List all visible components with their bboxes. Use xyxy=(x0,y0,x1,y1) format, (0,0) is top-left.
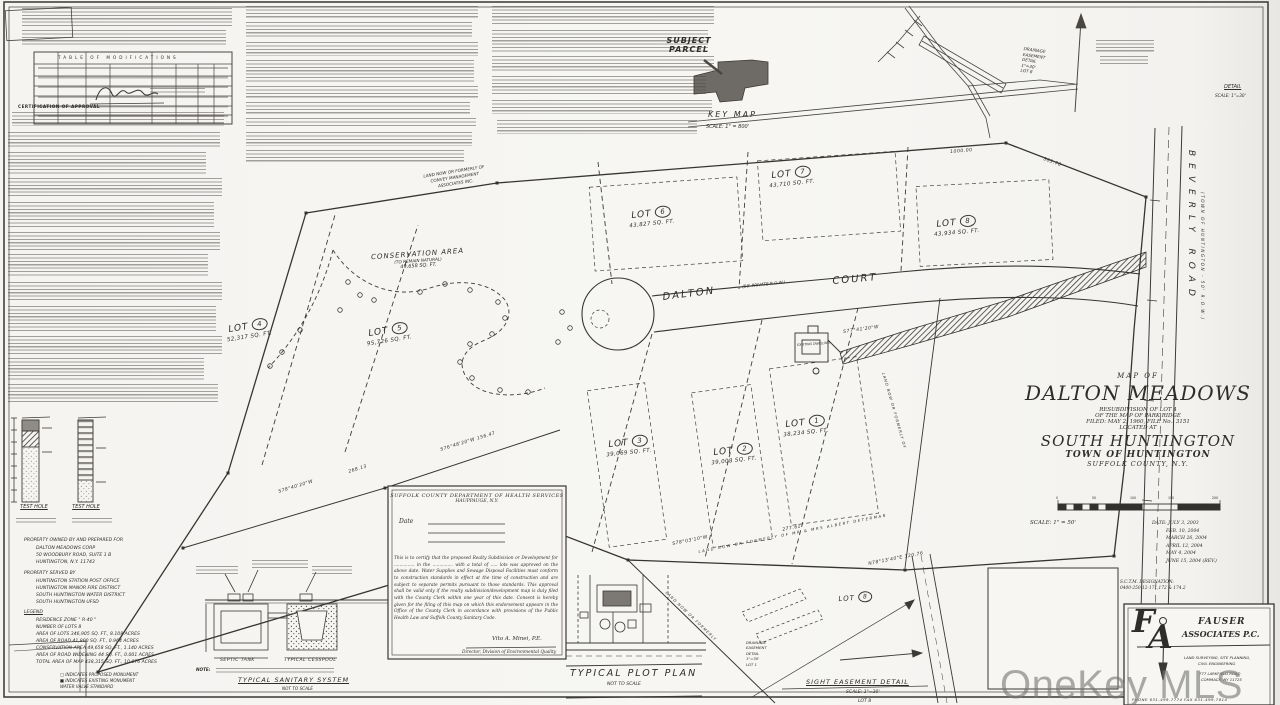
title-scale: SCALE: 1" = 50' xyxy=(1030,520,1076,526)
legend-line: AREA OF ROAD 41,800 SQ. FT., 0.964 ACRES xyxy=(36,639,139,644)
bearing-label: 1000.00 xyxy=(950,148,973,155)
existing-dwelling-label: EXISTING DWELLING xyxy=(797,341,830,347)
illegible-notes-block xyxy=(246,6,478,18)
illegible-notes-block xyxy=(8,152,206,174)
illegible-notes-block xyxy=(8,202,214,228)
scale-tick: 200 xyxy=(1212,496,1218,500)
plot-plan-title: TYPICAL PLOT PLAN xyxy=(570,668,697,679)
date-line: FEB. 10, 2004 xyxy=(1152,528,1217,536)
illegible-notes-block xyxy=(216,668,334,674)
served-line: PROPERTY SERVED BY xyxy=(24,571,75,576)
health-box-date-label: Date xyxy=(399,518,413,525)
date-line: MAY 4, 2004 xyxy=(1152,550,1217,558)
illegible-notes-block xyxy=(150,88,205,94)
legend-symbol-line: WATER VALVE STANDARD xyxy=(60,684,113,689)
lot-label-7: LOT7 43,710 SQ. FT. xyxy=(745,156,837,191)
legend-symbol-line: □ INDICATES PROPOSED MONUMENT xyxy=(60,672,138,677)
illegible-notes-block xyxy=(1100,56,1148,66)
illegible-notes-block xyxy=(8,254,208,278)
illegible-notes-block xyxy=(12,112,224,126)
health-box-body: This is to certify that the proposed Rea… xyxy=(394,556,558,623)
illegible-notes-block xyxy=(8,336,222,354)
bearing-label: S76°48'20"W 156.47 xyxy=(440,431,496,453)
detail-title: DETAIL xyxy=(1224,84,1241,90)
drainage-easement-note-top: DRAINAGE EASEMENT DETAIL 1"=30' LOT 8 xyxy=(1020,46,1046,77)
bearing-label: N78°13'40"E 320.76 xyxy=(868,551,924,567)
legend-line: NUMBER OF LOTS 8 xyxy=(36,625,81,630)
fauser-name: FAUSER xyxy=(1198,617,1246,627)
illegible-notes-block xyxy=(8,132,220,148)
illegible-notes-block xyxy=(492,100,712,114)
owner-line: DALTON MEADOWS CORP xyxy=(36,546,95,551)
lot-label-8-detail: LOT8 xyxy=(819,583,890,607)
served-line: HUNTINGTON STATION POST OFFICE xyxy=(36,579,119,584)
illegible-notes-block xyxy=(1096,40,1154,52)
title-block: MAP OF DALTON MEADOWS RESUBDIVISION OF L… xyxy=(1018,372,1258,468)
title-map-name: DALTON MEADOWS xyxy=(1018,381,1258,405)
title-map-of: MAP OF xyxy=(1018,372,1258,380)
test-hole-label-2: TEST HOLE xyxy=(64,504,108,510)
key-map-scale: SCALE: 1" = 800' xyxy=(706,124,749,130)
adjoiner-label-top: LAND NOW OR FORMERLY OF CONVEY MANAGEMEN… xyxy=(408,162,502,194)
illegible-notes-block xyxy=(246,22,472,38)
title-county: SUFFOLK COUNTY, N.Y. xyxy=(1018,460,1258,468)
road-row-note: (50' PRIVATE R.O.W.) xyxy=(742,279,786,288)
subject-parcel-label: SUBJECT PARCEL xyxy=(652,36,726,54)
adjoiner-label-determan: LAND NOW OR FORMERLY OF MR & MRS ALBERT … xyxy=(698,512,887,554)
sctm-designation: S.C.T.M. DESIGNATION: xyxy=(1120,580,1174,585)
fauser-name2: ASSOCIATES P.C. xyxy=(1182,629,1260,639)
date-line: MARCH 26, 2004 xyxy=(1152,535,1217,543)
illegible-notes-block xyxy=(246,150,464,162)
sanitary-title: TYPICAL SANITARY SYSTEM xyxy=(238,676,349,684)
road-name-court: COURT xyxy=(832,272,878,287)
sctm-number: 0400-250-12-171,172 & 174.2 xyxy=(1120,586,1186,591)
illegible-notes-block xyxy=(72,518,112,524)
lot-label-8: LOT8 43,934 SQ. FT. xyxy=(910,206,1002,240)
key-map-title: KEY MAP xyxy=(708,110,757,119)
legend-line: CONSERVATION AREA 49,658 SQ. FT., 1.140 … xyxy=(36,646,154,651)
certification-heading: CERTIFICATION OF APPROVAL xyxy=(18,104,100,109)
fauser-logo-a: A xyxy=(1148,618,1173,656)
served-line: HUNTINGTON MANOR FIRE DISTRICT xyxy=(36,586,120,591)
legend-symbol-line: ■ INDICATES EXISTING MONUMENT xyxy=(60,678,135,683)
health-box-header: SUFFOLK COUNTY DEPARTMENT OF HEALTH SERV… xyxy=(390,493,564,504)
modifications-table-title: TABLE OF MODIFICATIONS xyxy=(58,55,179,60)
scale-tick: 100 xyxy=(1130,496,1136,500)
test-hole-label-1: TEST HOLE xyxy=(12,504,56,510)
bearing-label: 303.76 xyxy=(1042,157,1062,168)
health-box-signature-title: Director, Division of Environmental Qual… xyxy=(462,650,556,655)
legend-line: TOTAL AREA OF MAP 438,315 SQ. FT., 10.07… xyxy=(36,660,157,665)
scale-tick: 0 xyxy=(1056,496,1058,500)
onekey-mls-watermark: OneKey MLS xyxy=(1000,663,1243,705)
illegible-notes-block xyxy=(246,102,470,114)
served-line: SOUTH HUNTINGTON UFSD xyxy=(36,600,99,605)
health-box-signature: Vito A. Minei, P.E. xyxy=(492,636,542,642)
illegible-notes-block xyxy=(22,30,226,46)
illegible-notes-block xyxy=(246,42,478,56)
illegible-notes-block xyxy=(497,120,697,134)
illegible-notes-block xyxy=(8,384,218,402)
date-line: DATE: JULY 3, 2003 xyxy=(1152,520,1217,528)
sight-easement-lot: LOT 8 xyxy=(858,699,871,704)
bearing-label: S78°40'20"W xyxy=(278,479,314,494)
illegible-notes-block xyxy=(8,358,204,380)
title-sub: LOCATED AT xyxy=(1018,425,1258,431)
title-town: TOWN OF HUNTINGTON xyxy=(1018,450,1258,460)
illegible-notes-block xyxy=(8,282,222,302)
legend-line: RESIDENCE ZONE " R-40 " xyxy=(36,618,96,623)
owner-line: HUNTINGTON, N.Y. 11743 xyxy=(36,560,95,565)
sanitary-note-label: NOTE: xyxy=(196,667,210,672)
scanned-subdivision-map-photo: TABLE OF MODIFICATIONS CERTIFICATION OF … xyxy=(0,0,1280,705)
illegible-notes-block xyxy=(246,86,478,98)
scale-tick: 50 xyxy=(1092,496,1096,500)
adjoiner-label-southeast: LAND NOW OR FORMERLY xyxy=(665,590,718,642)
conservation-area-label: CONSERVATION AREA (TO REMAIN NATURAL) 49… xyxy=(351,245,484,273)
road-name-dalton: DALTON xyxy=(662,286,716,303)
illegible-notes-block xyxy=(246,60,474,82)
illegible-notes-block xyxy=(22,8,232,26)
plot-plan-nts: NOT TO SCALE xyxy=(607,682,641,687)
legend-line: AREA OF ROAD WIDENING 44 SQ. FT., 0.001 … xyxy=(36,653,154,658)
fauser-services: LAND SURVEYING, SITE PLANNING, xyxy=(1184,655,1250,660)
illegible-notes-block xyxy=(492,6,714,26)
drainage-easement-note: DRAINAGE EASEMENT DETAIL 1"=30' LOT 1 xyxy=(746,640,767,667)
bearing-label: S77°41'20"W xyxy=(843,325,880,335)
illegible-notes-block xyxy=(246,132,472,146)
adjoiner-label-east: LAND NOW OR FORMERLY OF xyxy=(881,372,908,449)
legend-title: LEGEND xyxy=(24,610,43,615)
legend-line: AREA OF LOTS 346,905 SQ. FT., 8.108 ACRE… xyxy=(36,632,140,637)
served-line: SOUTH HUNTINGTON WATER DISTRICT xyxy=(36,593,125,598)
sight-easement-scale: SCALE: 1"=30' xyxy=(846,690,880,695)
owner-line: 50 WOODBURY ROAD, SUITE 1 B xyxy=(36,553,111,558)
beverly-road-label: BEVERLY ROAD xyxy=(1186,150,1196,303)
date-line: JUNE 15, 2004 (REV.) xyxy=(1152,558,1217,566)
lot-label-3: LOT3 39,069 SQ. FT. xyxy=(582,425,674,460)
lot-label-6: LOT6 43,827 SQ. FT. xyxy=(605,196,697,231)
beverly-road-note: (TOWN OF HUNTINGTON - 50' R.O.W.) xyxy=(1200,192,1205,321)
detail-scale: SCALE: 1"=30' xyxy=(1215,93,1246,98)
illegible-notes-block xyxy=(492,76,706,96)
illegible-notes-block xyxy=(492,56,714,72)
cesspool-label: TYPICAL CESSPOOL xyxy=(284,658,336,663)
bearing-label: S78°03'10"W xyxy=(672,535,708,547)
sight-easement-title: SIGHT EASEMENT DETAIL xyxy=(806,678,909,686)
owner-line: PROPERTY OWNED BY AND PREPARED FOR xyxy=(24,538,123,543)
bearing-label: 268.13 xyxy=(348,464,368,474)
illegible-notes-block xyxy=(8,232,220,250)
illegible-notes-block xyxy=(196,566,238,574)
date-line: APRIL 12, 2004 xyxy=(1152,543,1217,551)
sanitary-nts: NOT TO SCALE xyxy=(282,686,313,691)
illegible-notes-block xyxy=(8,306,216,332)
scale-tick: 150 xyxy=(1168,496,1174,500)
label-layer: TABLE OF MODIFICATIONS CERTIFICATION OF … xyxy=(0,0,1280,705)
illegible-notes-block xyxy=(252,560,308,570)
title-dates: DATE: JULY 3, 2003 FEB. 10, 2004 MARCH 2… xyxy=(1152,520,1217,566)
illegible-notes-block xyxy=(312,566,352,574)
lot-label-2: LOT2 39,008 SQ. FT. xyxy=(687,433,779,468)
lot-label-5: LOT5 95,726 SQ. FT. xyxy=(342,311,435,351)
illegible-notes-block xyxy=(8,178,222,198)
illegible-notes-block xyxy=(16,518,56,524)
title-place: SOUTH HUNTINGTON xyxy=(1018,432,1258,450)
septic-tank-label: SEPTIC TANK xyxy=(220,658,255,663)
illegible-notes-block xyxy=(246,118,476,128)
